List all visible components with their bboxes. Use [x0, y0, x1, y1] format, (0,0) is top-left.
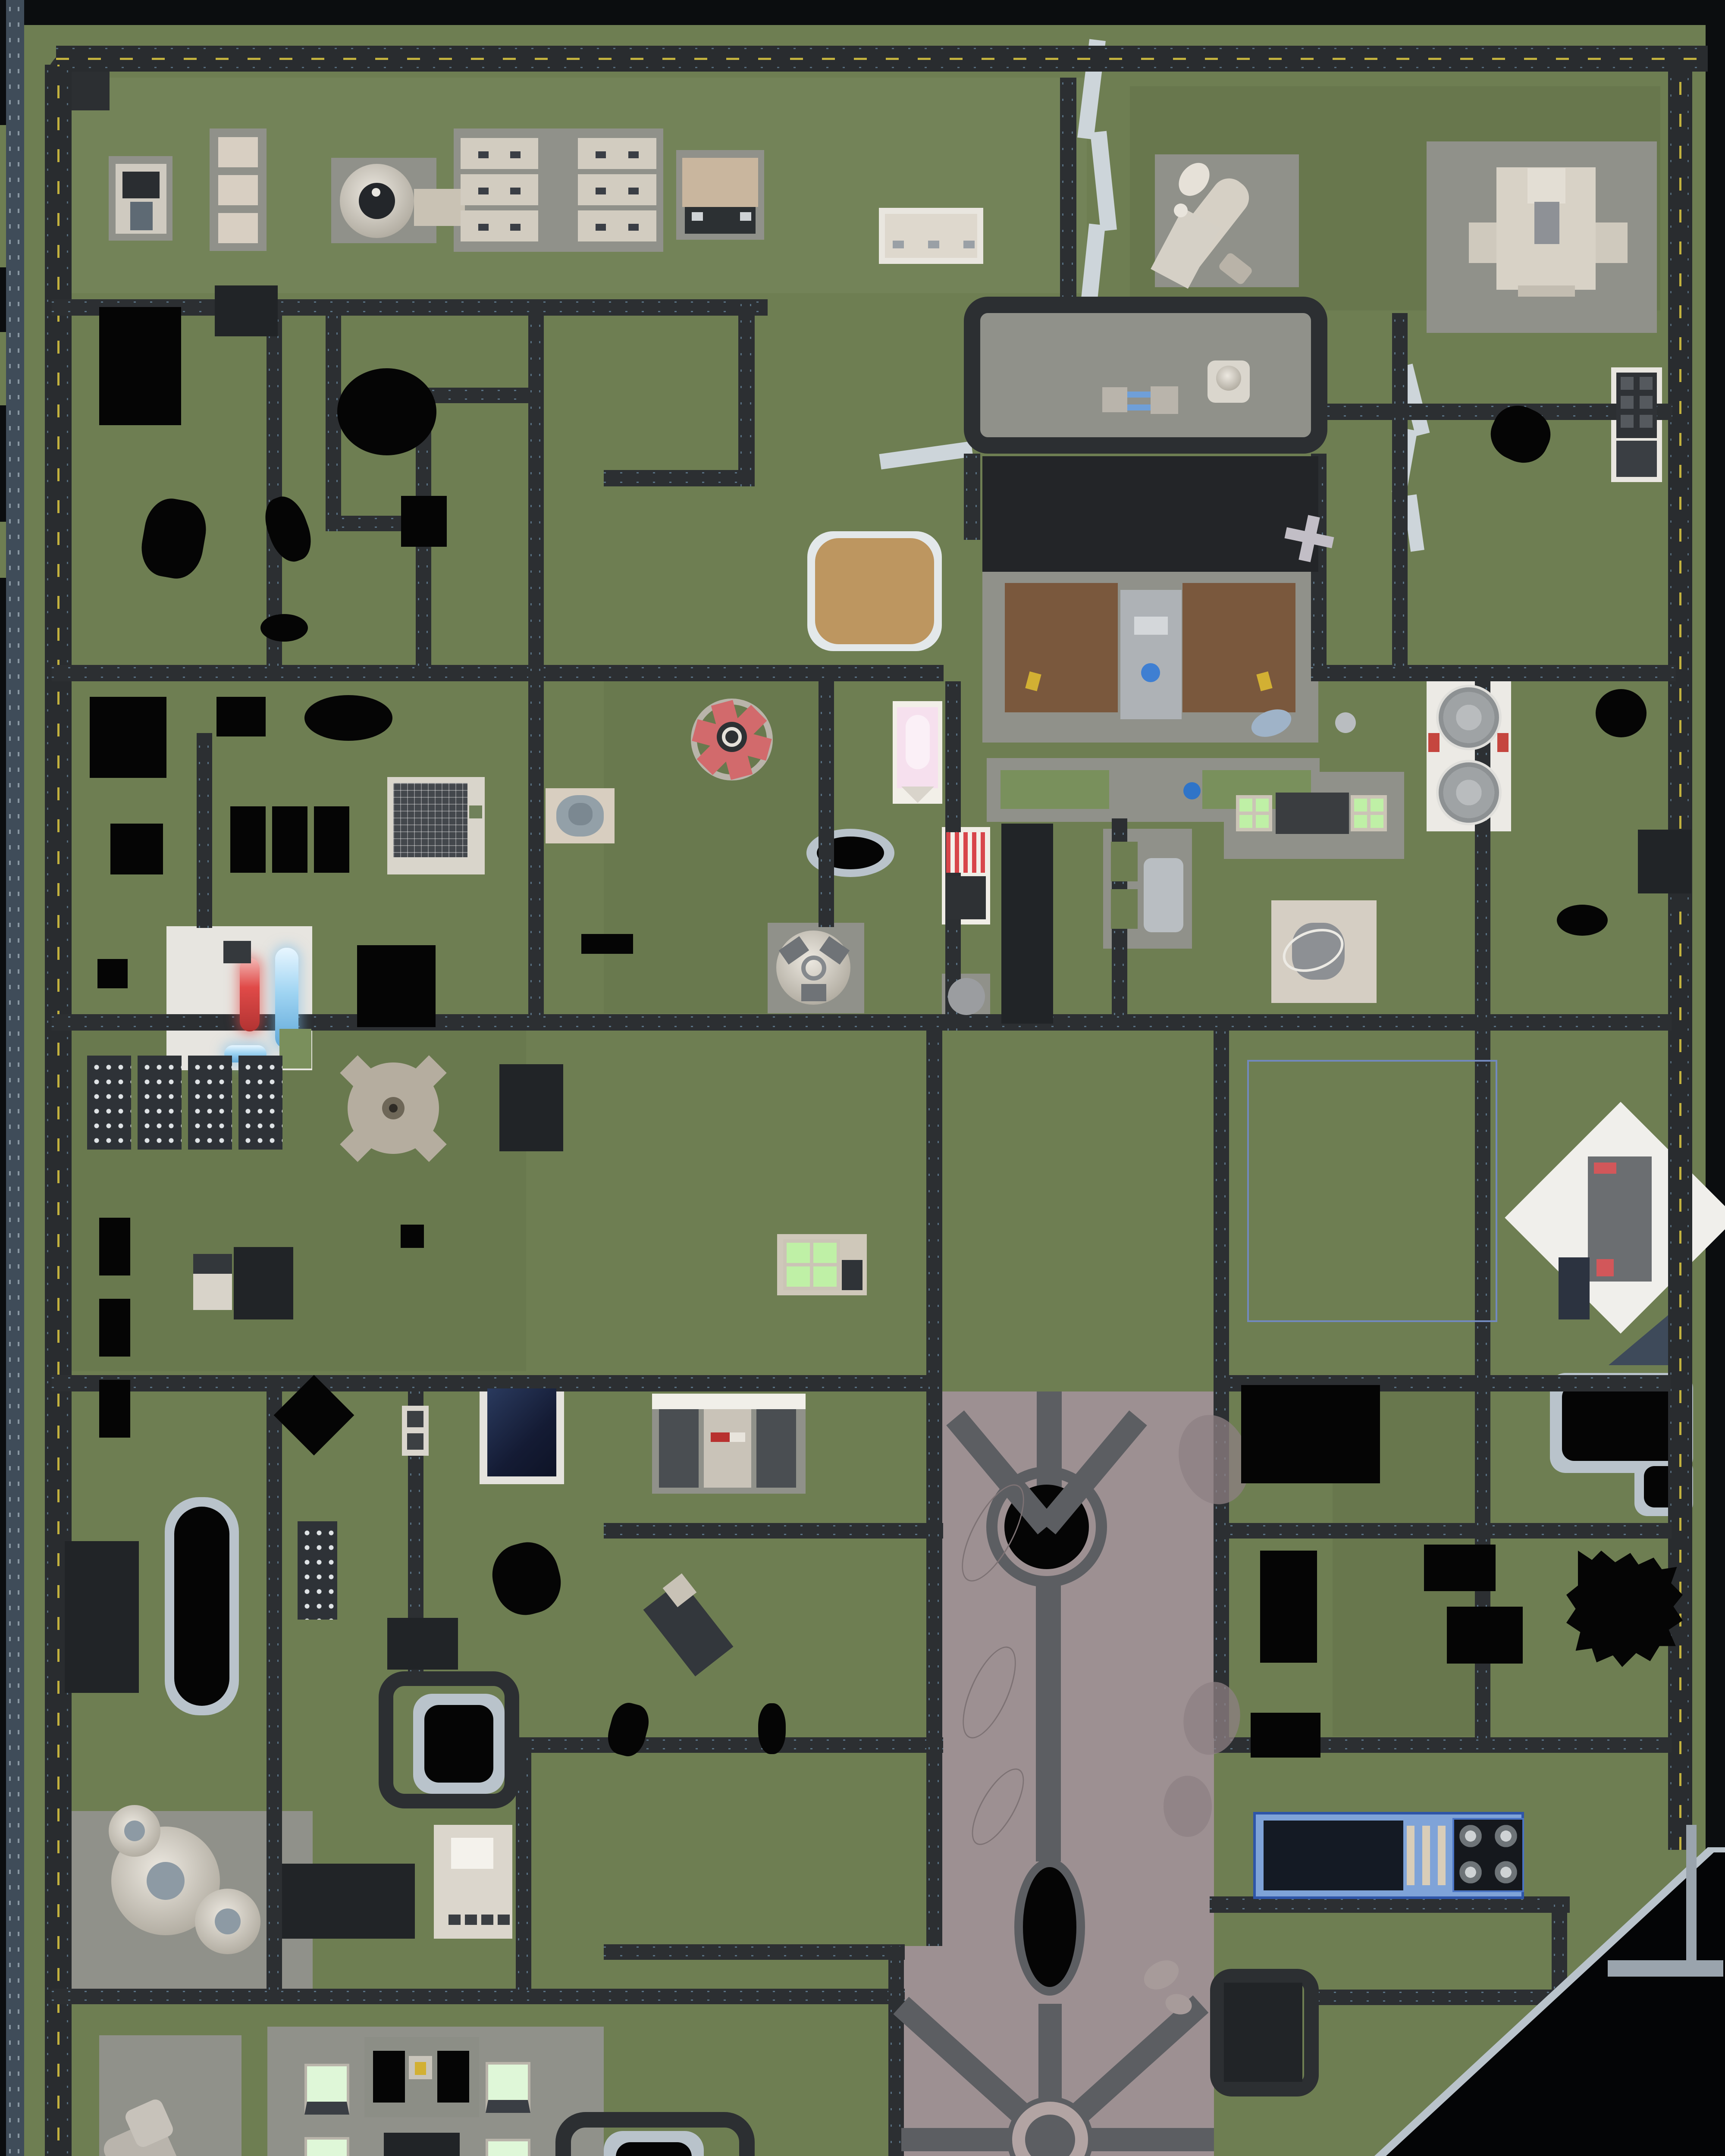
highway-left: [45, 65, 72, 2156]
charcoal-slab: [1001, 824, 1053, 1024]
tan-building: [682, 158, 758, 207]
bldg-small-4: [581, 934, 633, 954]
fan-row-1-2: [1495, 1825, 1517, 1847]
kiosk-3: [304, 2137, 349, 2156]
pad-building-pip-3: [481, 1915, 493, 1925]
highway-right: [1668, 65, 1692, 1850]
bldg-ibeam-1: [99, 1218, 130, 1275]
bldg-bowtie: [1557, 905, 1608, 936]
barrack-row-a-1: [461, 138, 538, 169]
apartment-block-2: [138, 1056, 182, 1150]
heliport-structure: [1144, 858, 1183, 932]
motel-unit-left: [659, 1409, 699, 1488]
bldg-bat-1: [337, 368, 436, 455]
dumbbell-square-right: [1151, 386, 1178, 414]
charcoal-7: [282, 1864, 415, 1939]
capitol-wing-left: [1469, 222, 1498, 263]
fan-row-1-1: [1459, 1825, 1482, 1847]
bldg-col-1: [1260, 1551, 1317, 1663]
skate-bowl-inner: [568, 803, 593, 825]
pad-building-pip-4: [498, 1915, 510, 1925]
bldg-trio-1: [230, 806, 266, 873]
picnic-table-group-3: [218, 213, 258, 243]
avenue-v6: [738, 299, 755, 486]
solar-grid: [393, 783, 467, 857]
tl-building-roofwell: [122, 172, 160, 198]
bldg-trio-2: [272, 806, 307, 873]
gas-pump-row-1-2: [1640, 377, 1653, 390]
street-o: [1317, 1990, 1568, 2005]
apartment-block-1: [87, 1056, 131, 1150]
apartment-block-3: [188, 1056, 232, 1150]
observatory-annex: [414, 189, 465, 226]
gas-pump-row-2-1: [1621, 396, 1634, 409]
bldg-poly-1: [90, 697, 166, 778]
avenue-v2: [267, 316, 282, 666]
bldg-bat-2: [304, 695, 392, 741]
bldg-oval-1: [260, 614, 308, 642]
bldg-ibeam-3: [99, 1380, 130, 1438]
red-truck-1: [1428, 733, 1440, 752]
tan-building-pip-1: [692, 212, 703, 221]
atomic-notch-3: [801, 984, 826, 1001]
kiosk-2: [486, 2062, 530, 2113]
glasshouse-1: [1236, 795, 1272, 831]
charcoal-3: [234, 1247, 293, 1319]
cross-fountain-dot: [389, 1104, 398, 1112]
motel-center: [704, 1409, 751, 1488]
bldg-big-2: [1241, 1385, 1380, 1483]
rotunda-center-ring: [722, 727, 742, 747]
city-map-canvas[interactable]: [0, 0, 1725, 2156]
gas-canopy: [1616, 441, 1657, 477]
office-dots: [298, 1521, 337, 1620]
palace-garden-left: [1005, 583, 1118, 712]
bldg-big-1: [357, 945, 436, 1027]
whitehouse-loop: [964, 297, 1327, 454]
bldg-plus: [97, 959, 128, 988]
street-h: [604, 1944, 905, 1960]
pier-right-bar: [1608, 1960, 1723, 1977]
obelisk: [906, 715, 930, 769]
pool-complex-column-2: [1422, 1826, 1430, 1885]
pool-complex-column-3: [1438, 1826, 1446, 1885]
pool-complex-water: [1264, 1821, 1403, 1890]
capitol-portico: [1527, 168, 1565, 204]
garden-lawn-left: [1000, 770, 1109, 809]
fenced-lot: [1247, 1060, 1497, 1322]
bldg-hall: [99, 307, 181, 425]
sculpture-slab: [1276, 793, 1349, 834]
gas-pump-row-2-2: [1640, 396, 1653, 409]
pad-building-pip-1: [448, 1915, 461, 1925]
pod-dome: [1216, 366, 1241, 391]
observatory-pip: [372, 188, 380, 197]
motel-roofband: [652, 1394, 806, 1409]
heliport-lawn-2: [1111, 889, 1138, 929]
diamond-red-1: [1594, 1163, 1616, 1174]
vending-dark-2: [407, 1433, 423, 1450]
atomic-ring: [801, 956, 826, 981]
capitol-core: [1534, 202, 1559, 244]
silo-cap-1: [147, 1862, 185, 1900]
pool-complex-column-1: [1407, 1826, 1414, 1885]
bldg-sq-1: [401, 496, 447, 547]
avenue-v3228: [1392, 313, 1408, 666]
stripe-museum-roof: [946, 832, 986, 873]
gallery-pip-1: [893, 241, 904, 248]
tan-building-pip-2: [740, 212, 751, 221]
street-b: [604, 470, 755, 486]
gallery-pip-3: [963, 241, 975, 248]
memorial-pool-right: [437, 2051, 469, 2103]
avenue-v7: [819, 681, 834, 927]
dumbbell-bar-2: [1127, 404, 1151, 411]
silo-cap-3: [215, 1908, 241, 1934]
gray-circle: [948, 978, 985, 1015]
lab-red-tube: [240, 958, 260, 1031]
bldg-blob-4: [758, 1703, 786, 1754]
gas-pump-row-3-1: [1621, 415, 1634, 428]
barrack-row-b-2: [578, 174, 656, 205]
glasshouse-2: [1351, 795, 1387, 831]
diamond-red-2: [1596, 1259, 1614, 1276]
kiosk-4: [486, 2139, 530, 2156]
palace-blue-dome: [1141, 663, 1160, 682]
sand-beach: [815, 538, 934, 644]
barrack-row-a-3: [461, 210, 538, 241]
pond-loop: [379, 1671, 519, 1808]
greenhouse-console: [842, 1260, 862, 1290]
storage-tank-2: [1436, 760, 1502, 825]
vending-dark-1: [407, 1411, 423, 1427]
solar-building-tr: [1559, 1257, 1590, 1319]
charcoal-5: [387, 1618, 458, 1670]
storage-tank-1: [1436, 685, 1502, 750]
picnic-table-group-1: [218, 137, 258, 167]
avenue-v8b: [926, 1031, 942, 1946]
vesica-pool: [1023, 1867, 1076, 1987]
motel-sign: [711, 1432, 745, 1442]
dumbbell-square-left: [1102, 387, 1127, 412]
avenue-v8c: [888, 1946, 904, 2156]
memorial-pool-left: [373, 2051, 405, 2103]
capitol-wing-right: [1595, 222, 1628, 263]
highway-top: [56, 46, 1708, 72]
sphere-sculpture: [1335, 712, 1356, 733]
bldg-r-2: [1447, 1607, 1523, 1664]
bldg-trio-3: [314, 806, 349, 873]
motel-unit-right: [756, 1409, 796, 1488]
palace-garden-right: [1182, 583, 1295, 712]
avenue-v5: [528, 316, 544, 1015]
heliport-lawn-1: [1111, 842, 1138, 881]
pad-building-skylight: [451, 1838, 493, 1869]
rail-left: [6, 0, 24, 2156]
bldg-sq-3: [110, 824, 163, 874]
street-i: [52, 1989, 905, 2004]
plaza-shadow-3: [1164, 1776, 1212, 1837]
pier-right: [1686, 1825, 1697, 1967]
charcoal-1: [215, 285, 278, 336]
bldg-small-5: [401, 1225, 424, 1248]
charcoal-10: [1224, 1983, 1302, 2082]
barrack-row-b-3: [578, 210, 656, 241]
charcoal-2: [499, 1064, 563, 1151]
street-f: [604, 1523, 943, 1539]
gallery-pip-2: [928, 241, 939, 248]
bldg-r-1: [1424, 1545, 1496, 1591]
charcoal-6: [65, 1541, 139, 1693]
lab-lawn: [279, 1029, 311, 1069]
bldg-r-3: [1251, 1713, 1320, 1758]
fan-row-2-2: [1495, 1861, 1517, 1883]
gas-pump-row-1-1: [1621, 377, 1634, 390]
fan-row-2-1: [1459, 1861, 1482, 1883]
capitol-steps: [1518, 285, 1575, 297]
white-tower-top: [193, 1254, 232, 1274]
mall-axis-m: [1036, 1584, 1061, 1861]
red-truck-2: [1497, 733, 1509, 752]
charcoal-9: [1638, 830, 1691, 893]
charcoal-8: [384, 2133, 460, 2156]
bldg-sq-2: [216, 697, 266, 736]
barrack-row-b-1: [578, 138, 656, 169]
pond-long: [174, 1507, 229, 1706]
avenue-wh-stub: [1060, 78, 1076, 298]
apartment-block-4: [238, 1056, 282, 1150]
stripe-museum-dark: [946, 876, 986, 919]
barrack-row-a-2: [461, 174, 538, 205]
bldg-oval-2: [1596, 689, 1647, 737]
tl-building-door: [130, 202, 153, 230]
avenue-v2235: [964, 454, 980, 540]
kiosk-1: [304, 2064, 349, 2115]
street-c2: [1311, 665, 1676, 681]
avenue-v10: [1214, 1031, 1229, 1738]
silo-cap-2: [124, 1821, 145, 1841]
pad-building-pip-2: [465, 1915, 477, 1925]
avenue-v15: [267, 1391, 282, 1990]
palace-centerpiece: [1134, 617, 1168, 635]
street-c: [52, 665, 944, 681]
palace-band: [982, 456, 1318, 572]
pond-L-a: [1562, 1385, 1681, 1461]
street-g: [515, 1737, 943, 1753]
lab-dark-unit: [223, 941, 251, 963]
memorial-gold-statue: [415, 2062, 426, 2075]
gallery-interior: [885, 214, 977, 258]
bldg-ibeam-2: [99, 1299, 130, 1357]
solar-green: [469, 805, 482, 818]
gas-pump-row-3-2: [1640, 415, 1653, 428]
reflect-pool: [487, 1388, 556, 1476]
palace-center: [1120, 590, 1182, 719]
avenue-v13: [197, 733, 212, 928]
picnic-table-group-2: [218, 175, 258, 205]
dumbbell-bar-1: [1127, 392, 1151, 398]
street-f2: [1214, 1523, 1672, 1539]
garden-fountain: [1183, 782, 1201, 799]
greenhouse-panes: [783, 1239, 840, 1290]
lake-loop: [555, 2112, 755, 2156]
